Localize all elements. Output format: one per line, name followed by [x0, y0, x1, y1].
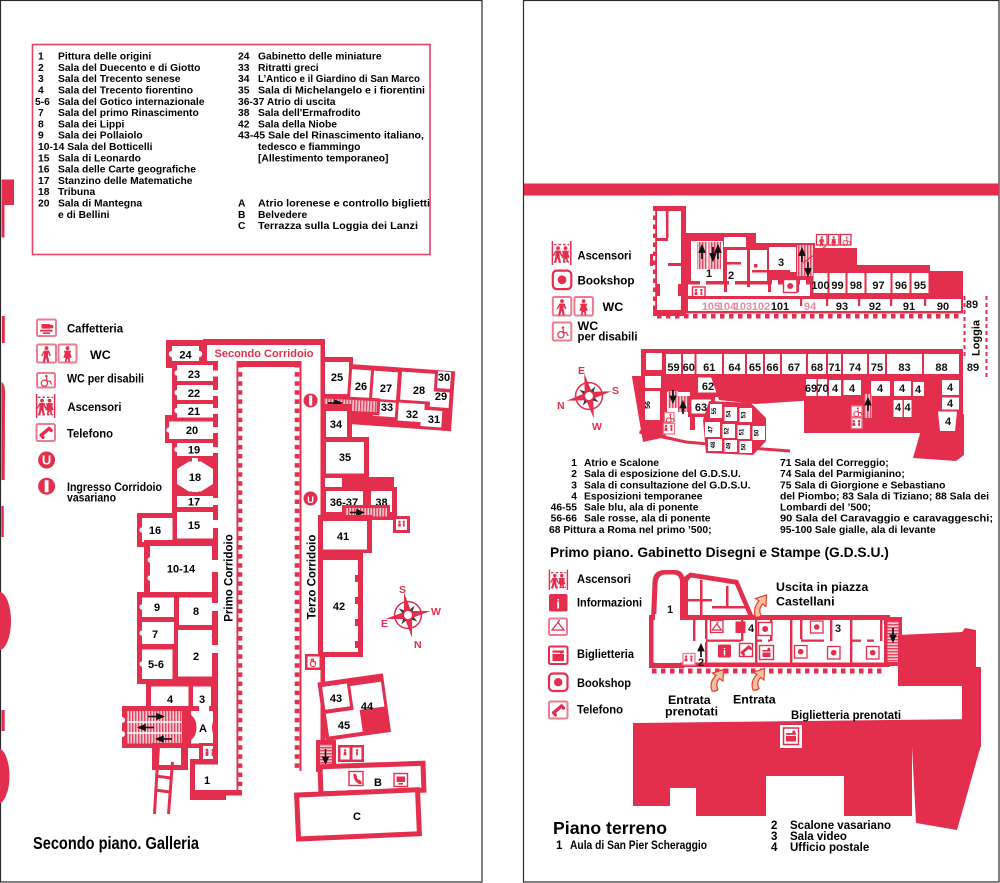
svg-text:35: 35: [339, 452, 351, 464]
svg-text:Sala del primo Rinascimento: Sala del primo Rinascimento: [58, 108, 199, 119]
svg-text:44: 44: [361, 701, 374, 713]
svg-text:Sala dei Lippi: Sala dei Lippi: [58, 119, 125, 130]
svg-text:4: 4: [849, 383, 856, 395]
svg-text:55: 55: [712, 407, 718, 414]
svg-text:Sala del Trecento senese: Sala del Trecento senese: [58, 74, 181, 85]
svg-text:Sala delle Carte geografiche: Sala delle Carte geografiche: [58, 165, 196, 176]
svg-text:1: 1: [204, 775, 210, 787]
svg-text:98: 98: [850, 280, 862, 292]
svg-text:42: 42: [333, 601, 345, 613]
svg-text:4: 4: [915, 384, 922, 396]
svg-text:1: 1: [571, 458, 577, 469]
svg-text:Caffetteria: Caffetteria: [67, 322, 123, 336]
svg-text:3: 3: [199, 694, 205, 706]
svg-text:88: 88: [935, 362, 947, 374]
svg-text:Terrazza sulla Loggia dei Lanz: Terrazza sulla Loggia dei Lanzi: [258, 221, 418, 232]
svg-text:Ufficio postale: Ufficio postale: [790, 842, 869, 854]
svg-text:47: 47: [709, 426, 715, 433]
svg-text:9: 9: [38, 131, 44, 142]
svg-text:71: 71: [828, 362, 840, 374]
svg-text:83: 83: [898, 362, 910, 374]
svg-text:i: i: [556, 597, 560, 612]
svg-text:Sala di Michelangelo e i fiore: Sala di Michelangelo e i fiorentini: [258, 86, 425, 97]
svg-text:Pittura delle origini: Pittura delle origini: [58, 52, 151, 63]
svg-text:29: 29: [435, 391, 447, 403]
svg-text:Sala della Niobe: Sala della Niobe: [258, 119, 337, 130]
svg-text:33: 33: [238, 63, 250, 74]
svg-text:4: 4: [904, 402, 911, 414]
svg-text:30: 30: [438, 372, 450, 384]
svg-text:10-14: 10-14: [167, 564, 196, 576]
svg-text:del Piombo; 83 Sala di Tiziano: del Piombo; 83 Sala di Tiziano; 88 Sala …: [780, 491, 989, 502]
svg-text:per disabili: per disabili: [578, 330, 638, 344]
svg-text:101: 101: [771, 301, 789, 313]
svg-text:68 Pittura a Roma nel primo ’5: 68 Pittura a Roma nel primo ’500;: [549, 525, 712, 536]
svg-text:89: 89: [967, 362, 979, 374]
svg-text:4: 4: [947, 382, 954, 394]
svg-text:Ascensori: Ascensori: [68, 400, 122, 414]
svg-text:62: 62: [702, 381, 714, 393]
svg-text:Sala di Mantegna: Sala di Mantegna: [58, 199, 142, 210]
svg-text:Loggia: Loggia: [971, 319, 983, 356]
svg-text:75 Sala di Giorgione e Sebasti: 75 Sala di Giorgione e Sebastiano: [780, 480, 945, 491]
svg-text:WC: WC: [603, 300, 624, 314]
svg-text:2: 2: [571, 469, 577, 480]
svg-text:35: 35: [238, 86, 250, 97]
svg-text:Sala del Trecento fiorentino: Sala del Trecento fiorentino: [58, 86, 193, 97]
svg-text:102: 102: [752, 301, 770, 313]
svg-text:95: 95: [914, 280, 926, 292]
svg-text:21: 21: [188, 406, 200, 418]
svg-text:3: 3: [835, 623, 841, 635]
svg-text:[Allestimento temporaneo]: [Allestimento temporaneo]: [258, 153, 388, 164]
svg-text:52: 52: [725, 427, 731, 434]
svg-text:8: 8: [193, 606, 199, 618]
svg-text:Terzo Corridoio: Terzo Corridoio: [307, 535, 319, 620]
svg-text:1: 1: [38, 52, 44, 63]
svg-text:3: 3: [778, 257, 784, 269]
svg-text:99: 99: [831, 280, 843, 292]
svg-text:42: 42: [238, 119, 250, 130]
svg-text:96: 96: [895, 280, 907, 292]
svg-text:4: 4: [832, 383, 839, 395]
svg-text:WC: WC: [90, 348, 111, 362]
svg-text:S: S: [612, 385, 619, 397]
svg-text:70: 70: [816, 383, 828, 395]
svg-text:61: 61: [703, 362, 715, 374]
svg-text:Ascensori: Ascensori: [577, 572, 631, 586]
svg-text:36-37 Atrio di uscita: 36-37 Atrio di uscita: [238, 97, 336, 108]
svg-text:Piano terreno: Piano terreno: [553, 818, 667, 838]
svg-text:Telefono: Telefono: [577, 703, 623, 717]
svg-text:B: B: [238, 210, 245, 221]
svg-text:68: 68: [811, 362, 823, 374]
svg-text:Sale blu, ala di ponente: Sale blu, ala di ponente: [584, 503, 699, 514]
svg-text:17: 17: [188, 497, 200, 509]
svg-text:Lombardi del ’500;: Lombardi del ’500;: [780, 503, 871, 514]
svg-text:92: 92: [869, 301, 881, 313]
svg-text:18: 18: [38, 187, 50, 198]
svg-text:2: 2: [38, 63, 44, 74]
svg-text:Primo Corridoio: Primo Corridoio: [224, 534, 236, 622]
svg-text:2: 2: [698, 657, 704, 669]
svg-text:31: 31: [428, 414, 440, 426]
svg-text:33: 33: [381, 402, 393, 414]
svg-text:Sala del Gotico internazionale: Sala del Gotico internazionale: [58, 97, 205, 108]
svg-text:Esposizioni temporanee: Esposizioni temporanee: [584, 491, 703, 502]
svg-text:i: i: [723, 648, 726, 659]
svg-text:U: U: [307, 495, 314, 506]
svg-text:51: 51: [740, 428, 746, 435]
svg-text:94: 94: [804, 301, 817, 313]
svg-text:23: 23: [188, 369, 200, 381]
svg-text:43-45 Sale del Rinascimento it: 43-45 Sale del Rinascimento italiano,: [238, 131, 424, 142]
svg-text:27: 27: [380, 383, 392, 395]
svg-text:3: 3: [571, 480, 577, 491]
svg-text:C: C: [238, 221, 246, 232]
svg-text:43: 43: [330, 693, 342, 705]
svg-text:Atrio lorenese e controllo big: Atrio lorenese e controllo biglietti: [258, 199, 430, 210]
svg-text:4: 4: [571, 491, 577, 502]
svg-text:4: 4: [38, 86, 44, 97]
svg-text:41: 41: [337, 531, 349, 543]
svg-text:Aula di San Pier Scheraggio: Aula di San Pier Scheraggio: [570, 840, 707, 852]
svg-text:90: 90: [937, 301, 949, 313]
svg-text:Castellani: Castellani: [776, 595, 835, 609]
svg-text:A: A: [238, 199, 246, 210]
svg-text:34: 34: [238, 74, 250, 85]
svg-text:26: 26: [355, 381, 367, 393]
svg-text:63: 63: [695, 402, 707, 414]
svg-text:74 Sala del Parmigianino;: 74 Sala del Parmigianino;: [780, 469, 905, 480]
svg-text:64: 64: [728, 362, 741, 374]
svg-text:Tribuna: Tribuna: [58, 187, 95, 198]
svg-text:1: 1: [667, 604, 673, 616]
svg-text:W: W: [431, 606, 441, 618]
svg-text:20: 20: [38, 199, 50, 210]
svg-text:7: 7: [38, 108, 44, 119]
svg-text:4: 4: [771, 842, 778, 854]
svg-text:103: 103: [734, 301, 752, 313]
svg-text:100: 100: [811, 280, 829, 292]
svg-text:24: 24: [179, 350, 192, 362]
svg-text:4: 4: [877, 383, 884, 395]
svg-text:Informazioni: Informazioni: [577, 596, 642, 610]
svg-text:19: 19: [188, 445, 200, 457]
svg-text:vasariano: vasariano: [67, 491, 116, 505]
svg-text:3: 3: [38, 74, 44, 85]
svg-text:5-6: 5-6: [148, 659, 164, 671]
svg-text:28: 28: [413, 385, 425, 397]
svg-text:32: 32: [406, 409, 418, 421]
svg-text:97: 97: [872, 280, 884, 292]
svg-text:Sala di esposizione del G.D.S.: Sala di esposizione del G.D.S.U.: [584, 469, 741, 480]
svg-text:71 Sala del Correggio;: 71 Sala del Correggio;: [780, 458, 889, 469]
svg-text:Sala dell'Ermafrodito: Sala dell'Ermafrodito: [258, 108, 361, 119]
svg-text:Telefono: Telefono: [67, 426, 113, 440]
svg-text:45: 45: [338, 720, 350, 732]
svg-text:WC per disabili: WC per disabili: [67, 372, 144, 386]
svg-text:50: 50: [755, 429, 761, 436]
svg-text:50: 50: [742, 443, 748, 450]
svg-text:22: 22: [188, 388, 200, 400]
svg-text:4: 4: [947, 398, 954, 410]
svg-text:49: 49: [727, 442, 733, 449]
svg-text:U: U: [42, 453, 51, 468]
svg-text:60: 60: [683, 362, 695, 374]
svg-text:16: 16: [38, 165, 50, 176]
svg-text:90 Sala del Caravaggio e carav: 90 Sala del Caravaggio e caravaggeschi;: [780, 514, 993, 525]
svg-text:Atrio e Scalone: Atrio e Scalone: [584, 458, 659, 469]
svg-text:Gabinetto delle miniature: Gabinetto delle miniature: [258, 52, 382, 63]
svg-text:E: E: [381, 618, 388, 630]
svg-text:95-100 Sale gialle, ala di lev: 95-100 Sale gialle, ala di levante: [780, 525, 936, 536]
svg-text:20: 20: [186, 425, 198, 437]
svg-text:Ascensori: Ascensori: [578, 248, 632, 262]
svg-text:16: 16: [149, 525, 161, 537]
svg-text:74: 74: [849, 362, 862, 374]
svg-text:4: 4: [167, 694, 174, 706]
svg-text:69: 69: [805, 383, 817, 395]
svg-text:Sala del Duecento e di Giotto: Sala del Duecento e di Giotto: [58, 63, 200, 74]
svg-text:Belvedere: Belvedere: [258, 210, 308, 221]
svg-text:56: 56: [645, 401, 652, 409]
svg-text:B: B: [374, 777, 382, 789]
svg-text:1: 1: [556, 840, 563, 852]
svg-text:67: 67: [788, 362, 800, 374]
svg-text:4: 4: [899, 383, 906, 395]
svg-text:5-6: 5-6: [35, 97, 50, 108]
svg-text:54: 54: [727, 410, 733, 417]
svg-text:E: E: [578, 365, 585, 377]
svg-text:7: 7: [152, 629, 158, 641]
svg-text:56-66: 56-66: [551, 514, 578, 525]
svg-text:Entrata: Entrata: [733, 693, 776, 707]
svg-text:L’Antico e il Giardino di San: L’Antico e il Giardino di San Marco: [258, 74, 420, 85]
svg-text:38: 38: [238, 108, 250, 119]
svg-text:Uscita in piazza: Uscita in piazza: [776, 580, 868, 594]
svg-text:17: 17: [38, 176, 50, 187]
svg-text:66: 66: [766, 362, 778, 374]
svg-text:53: 53: [742, 411, 748, 418]
svg-text:Secondo Corridoio: Secondo Corridoio: [215, 348, 314, 360]
svg-text:Sala dei Pollaiolo: Sala dei Pollaiolo: [58, 131, 143, 142]
svg-text:A: A: [199, 723, 207, 735]
svg-text:46-55: 46-55: [551, 503, 578, 514]
svg-text:prenotati: prenotati: [665, 705, 718, 719]
svg-text:1: 1: [706, 268, 712, 280]
svg-text:Biglietteria: Biglietteria: [577, 647, 634, 661]
svg-text:18: 18: [189, 472, 201, 484]
svg-text:W: W: [592, 421, 602, 433]
svg-text:Secondo piano. Galleria: Secondo piano. Galleria: [33, 833, 199, 853]
svg-text:Biglietteria prenotati: Biglietteria prenotati: [791, 708, 901, 722]
svg-text:Sala di Leonardo: Sala di Leonardo: [58, 153, 141, 164]
svg-text:34: 34: [330, 419, 343, 431]
svg-text:24: 24: [238, 52, 250, 63]
svg-text:8: 8: [38, 119, 44, 130]
svg-text:15: 15: [188, 520, 200, 532]
svg-text:N: N: [414, 639, 422, 651]
svg-text:91: 91: [903, 301, 915, 313]
svg-text:4: 4: [945, 416, 952, 428]
svg-text:75: 75: [871, 362, 883, 374]
svg-text:S: S: [399, 584, 406, 596]
svg-text:C: C: [353, 811, 361, 823]
svg-text:Primo piano. Gabinetto Disegni: Primo piano. Gabinetto Disegni e Stampe …: [550, 545, 889, 560]
svg-text:e di Bellini: e di Bellini: [58, 210, 110, 221]
svg-text:Sala di consultazione del G.D.: Sala di consultazione del G.D.S.U.: [584, 480, 751, 491]
svg-text:9: 9: [154, 602, 160, 614]
svg-text:N: N: [557, 400, 565, 412]
svg-text:89: 89: [966, 299, 978, 311]
svg-text:Bookshop: Bookshop: [578, 274, 635, 288]
svg-text:25: 25: [331, 372, 343, 384]
svg-text:2: 2: [728, 270, 734, 282]
svg-text:tedesco e fiammingo: tedesco e fiammingo: [258, 142, 360, 153]
svg-text:59: 59: [667, 362, 679, 374]
svg-text:2: 2: [193, 651, 199, 663]
svg-text:4: 4: [748, 623, 755, 635]
svg-text:Sale rosse, ala di ponente: Sale rosse, ala di ponente: [584, 514, 711, 525]
svg-text:65: 65: [749, 362, 761, 374]
svg-text:93: 93: [836, 301, 848, 313]
svg-text:Stanzino delle Matematiche: Stanzino delle Matematiche: [58, 176, 193, 187]
svg-text:15: 15: [38, 153, 50, 164]
svg-text:10-14 Sala del Botticelli: 10-14 Sala del Botticelli: [38, 142, 153, 153]
svg-text:Ritratti greci: Ritratti greci: [258, 63, 319, 74]
svg-text:Bookshop: Bookshop: [577, 676, 631, 690]
svg-text:48: 48: [711, 441, 717, 448]
svg-text:4: 4: [895, 402, 902, 414]
